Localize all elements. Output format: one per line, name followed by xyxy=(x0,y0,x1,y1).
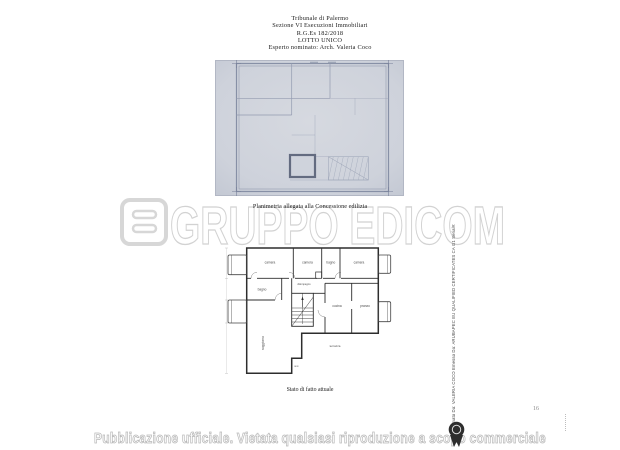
plan2-outer-walls xyxy=(247,248,379,373)
header-line-expert: Esperto nominato: Arch. Valeria Coco xyxy=(20,44,620,51)
room-label-pranzo: pranzo xyxy=(360,304,370,308)
caption-planimetria: Planimetria allegata alla Concessione ed… xyxy=(0,203,620,210)
header-block: Tribunale di Palermo Sezione VI Esecuzio… xyxy=(20,15,620,51)
header-line-section: Sezione VI Esecuzioni Immobiliari xyxy=(20,22,620,29)
signature-stamp-text: Firmato Da: VALERIA COCO Emesso Da: ARUB… xyxy=(451,224,456,429)
header-line-court: Tribunale di Palermo xyxy=(20,15,620,22)
page-number: 16 xyxy=(533,406,539,412)
award-ribbon-icon xyxy=(446,420,467,448)
header-line-lot: LOTTO UNICO xyxy=(20,37,620,44)
room-label-bagno-1: bagno xyxy=(326,261,335,265)
plan1-stair-core xyxy=(290,155,315,177)
footer-watermark: Pubblicazione ufficiale. Vietata qualsia… xyxy=(0,414,620,450)
floorplan-stato-di-fatto: camera camera bagno camera disimpegno ba… xyxy=(225,245,425,387)
plan2-room-labels: camera camera bagno camera disimpegno ba… xyxy=(258,261,371,369)
room-label-cucina: cucina xyxy=(332,304,341,308)
plan2-balconies xyxy=(228,255,391,323)
document-page: Tribunale di Palermo Sezione VI Esecuzio… xyxy=(0,0,620,450)
room-label-soggiorno: soggiorno xyxy=(261,336,265,350)
header-line-case-number: R.G.Es 182/2018 xyxy=(20,30,620,37)
room-label-disimpegno: disimpegno xyxy=(297,282,311,286)
room-label-terrazza: terrazza xyxy=(330,344,341,348)
room-label-bagno-2: bagno xyxy=(258,288,267,292)
room-label-camera-2: camera xyxy=(302,261,313,265)
room-label-camera-1: camera xyxy=(265,261,276,265)
scanned-blueprint-plan xyxy=(215,60,405,198)
plan2-dimension-marks xyxy=(225,248,228,373)
room-label-wc: w.c. xyxy=(294,364,299,368)
caption-stato-di-fatto: Stato di fatto attuale xyxy=(0,387,620,393)
plan2-door-arcs xyxy=(251,272,341,317)
room-label-camera-3: camera xyxy=(354,261,365,265)
plan2-staircase xyxy=(292,293,314,326)
footer-text: Pubblicazione ufficiale. Vietata qualsia… xyxy=(94,430,546,447)
